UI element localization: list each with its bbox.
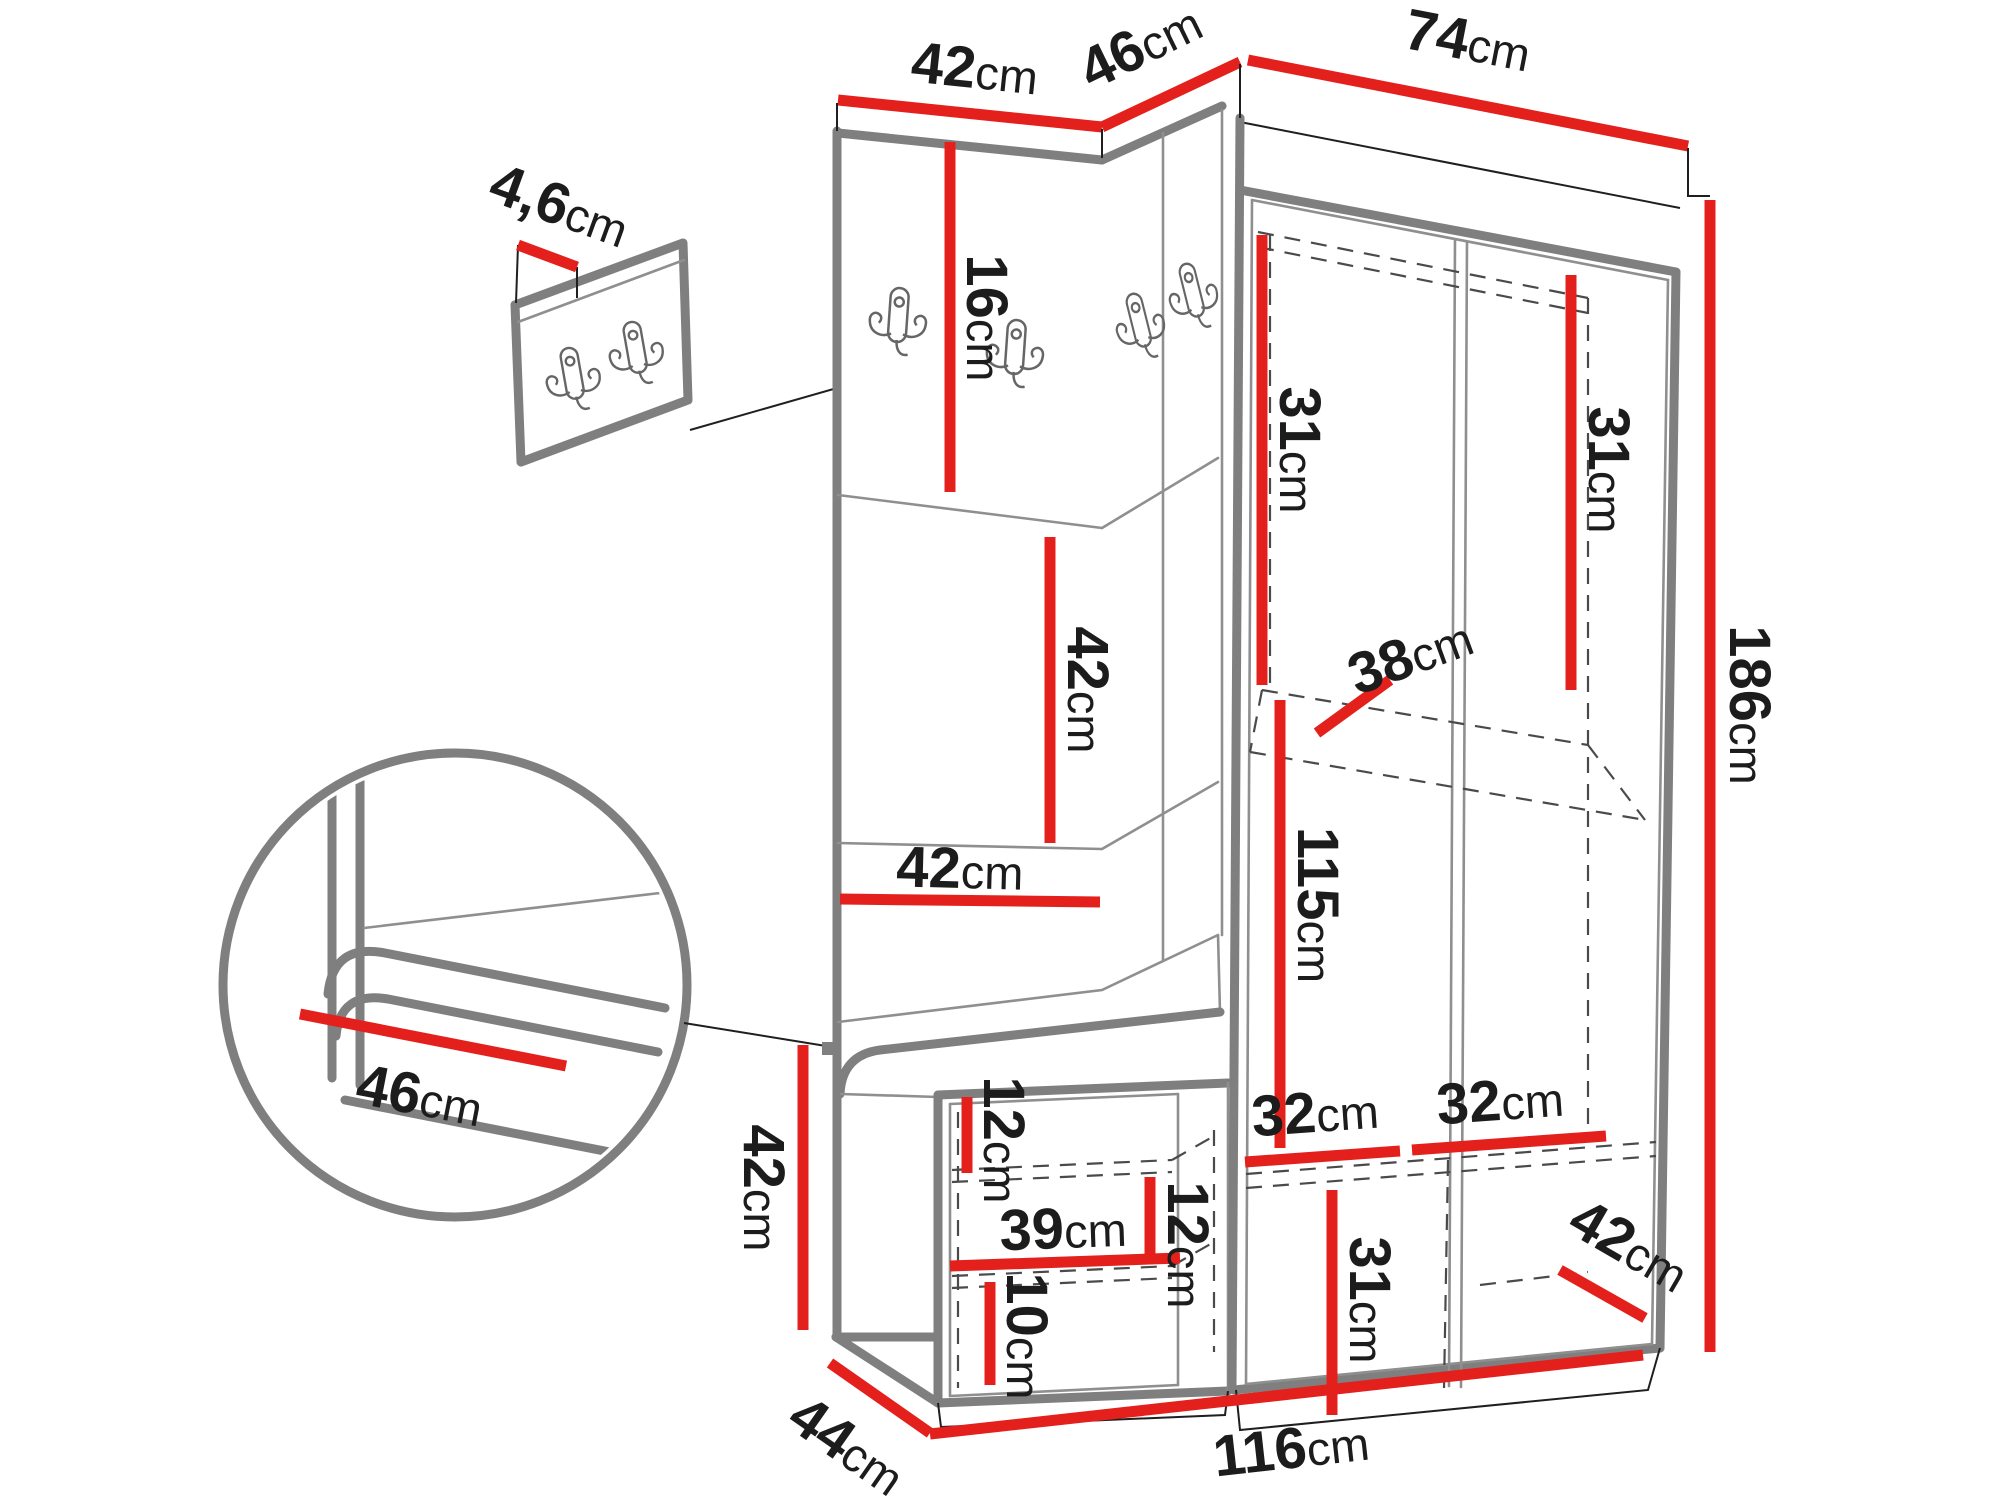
dim-label: 31cm <box>1337 1236 1402 1363</box>
dim-label: 44cm <box>777 1382 918 1500</box>
dim-label: 12cm <box>1155 1181 1220 1308</box>
cushion-right-edge <box>1218 935 1220 1012</box>
dim-bench-shelf-gap: 12cm <box>1150 1177 1220 1309</box>
dim-label: 32cm <box>1434 1064 1565 1138</box>
dim-wall-panel-thickness: 4,6cm <box>481 150 638 267</box>
dim-bottom-right-width: 32cm <box>1412 1064 1606 1150</box>
dim-bench-bottom-gap: 10cm <box>990 1272 1059 1399</box>
wardrobe-partition <box>1461 242 1467 1387</box>
dim-label: 31cm <box>1576 406 1641 533</box>
dim-label: 42cm <box>731 1124 796 1251</box>
wardrobe-right-edge <box>1660 272 1676 1348</box>
dim-wardrobe-upper-right: 31cm <box>1571 275 1641 690</box>
shelf-dashed <box>1250 690 1645 820</box>
diagram-canvas: 42cm 46cm 74cm 4,6cm 16cm 42cm 42cm 31cm… <box>0 0 2000 1500</box>
furniture-dimension-diagram: 42cm 46cm 74cm 4,6cm 16cm 42cm 42cm 31cm… <box>0 0 2000 1500</box>
dim-wardrobe-width-top: 74cm <box>1240 0 1710 196</box>
dim-bench-height: 42cm <box>731 1045 803 1330</box>
hook-panel <box>837 106 1225 1337</box>
wardrobe-bottom-edge <box>1234 1348 1660 1390</box>
dim-label: 74cm <box>1399 0 1536 85</box>
dim-label: 42cm <box>908 30 1041 108</box>
dim-label: 4,6cm <box>481 150 638 260</box>
dim-label: 46cm <box>351 1051 488 1139</box>
wardrobe-partition <box>1449 240 1455 1386</box>
dim-label: 12cm <box>971 1076 1036 1203</box>
dim-label: 39cm <box>998 1194 1127 1263</box>
dim-label: 32cm <box>1249 1076 1380 1150</box>
bench-bottom-left-edge <box>836 1337 938 1403</box>
dim-label: 116cm <box>1210 1408 1372 1490</box>
circle-connector-line <box>684 1023 826 1046</box>
bottom-divider-dashed <box>1444 1160 1448 1388</box>
dim-total-height: 186cm <box>1710 200 1782 1352</box>
wardrobe-left-edge <box>1232 118 1240 1388</box>
wall-hook-panel-detail <box>515 243 872 462</box>
dim-label: 38cm <box>1339 603 1481 708</box>
dim-bottom-left-width: 32cm <box>1245 1076 1400 1162</box>
dim-label: 186cm <box>1717 625 1782 784</box>
dim-label: 115cm <box>1285 827 1350 983</box>
dim-bench-top-offset: 12cm <box>967 1076 1036 1203</box>
wardrobe-top-front-edge <box>1240 190 1676 272</box>
dim-wardrobe-depth: 42cm <box>1558 1185 1701 1318</box>
detail-circle-outline <box>223 753 687 1217</box>
dim-label: 10cm <box>994 1272 1059 1399</box>
dim-label: 42cm <box>1055 626 1120 753</box>
dim-wardrobe-upper-left: 31cm <box>1262 235 1332 685</box>
dim-label: 16cm <box>954 254 1019 381</box>
interior-top-dashed2 <box>1258 247 1588 313</box>
dim-label: 31cm <box>1267 386 1332 513</box>
